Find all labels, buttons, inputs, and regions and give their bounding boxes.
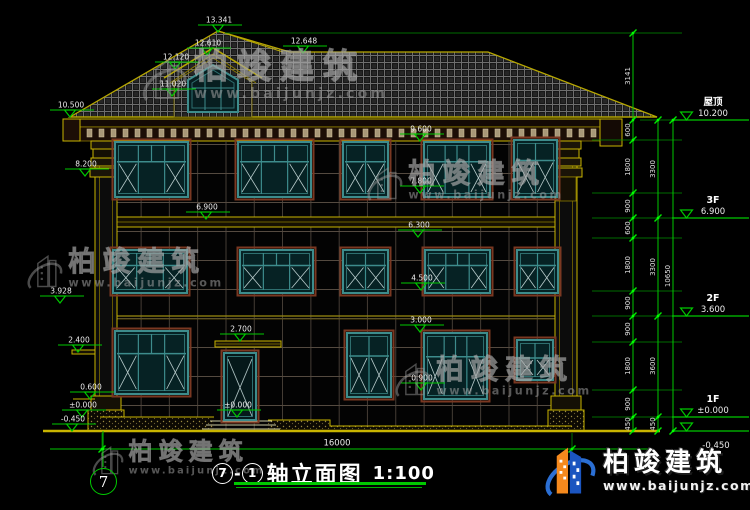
roof [70, 31, 657, 117]
svg-text:900: 900 [624, 322, 632, 335]
title-scale: 1:100 [373, 463, 435, 484]
brand-url: www.baijunjz.com [603, 478, 750, 493]
floor-level-mark: 3F6.900 [672, 195, 749, 218]
svg-text:3141: 3141 [624, 67, 632, 85]
svg-text:450: 450 [649, 417, 657, 430]
svg-text:4.500: 4.500 [411, 274, 433, 283]
svg-text:6.900: 6.900 [196, 203, 218, 212]
window [423, 248, 493, 296]
grid-axis-bubble: 7 [90, 468, 117, 495]
title-underline [234, 482, 426, 485]
side-ledge [72, 350, 95, 354]
svg-text:0.900: 0.900 [411, 374, 433, 383]
svg-text:13.341: 13.341 [206, 16, 232, 25]
svg-text:600: 600 [624, 123, 632, 136]
svg-text:600: 600 [624, 221, 632, 234]
title-underline-thin [236, 487, 422, 488]
svg-text:9.600: 9.600 [410, 125, 432, 134]
cad-drawing-canvas: 13.34112.61012.12011.02012.64810.5009.60… [0, 0, 750, 510]
svg-text:10.200: 10.200 [698, 109, 728, 119]
window [341, 140, 391, 200]
window [422, 140, 493, 200]
svg-text:3300: 3300 [649, 258, 657, 276]
svg-text:3300: 3300 [649, 160, 657, 178]
brand-logo-icon [538, 441, 598, 501]
dim-chain: 10650 [664, 117, 677, 435]
floor-level-mark: 1F±0.000 [672, 394, 749, 417]
window [238, 248, 316, 296]
svg-text:3F: 3F [706, 195, 719, 206]
svg-text:屋顶: 屋顶 [703, 97, 723, 108]
svg-text:-0.450: -0.450 [61, 415, 85, 424]
grid-axis-label: 7 [99, 473, 109, 491]
svg-text:±0.000: ±0.000 [224, 401, 252, 410]
svg-text:3600: 3600 [649, 357, 657, 375]
window [341, 248, 391, 296]
brand-name: 柏竣建筑 [603, 449, 750, 478]
svg-text:2F: 2F [706, 293, 719, 304]
window [113, 140, 191, 200]
level-mark: 3.928 [40, 287, 84, 304]
svg-text:6.900: 6.900 [701, 207, 725, 217]
svg-text:12.648: 12.648 [291, 37, 317, 46]
svg-text:1F: 1F [706, 394, 719, 405]
window [515, 248, 561, 296]
svg-text:3.600: 3.600 [701, 305, 725, 315]
window [512, 138, 560, 200]
svg-text:7.800: 7.800 [410, 177, 432, 186]
svg-text:1800: 1800 [624, 158, 632, 176]
svg-text:±0.000: ±0.000 [69, 401, 97, 410]
entry-door [222, 351, 259, 423]
floor-level-mark: 2F3.600 [672, 293, 749, 316]
svg-text:±0.000: ±0.000 [697, 406, 728, 416]
svg-text:12.120: 12.120 [163, 53, 189, 62]
svg-text:10.500: 10.500 [58, 101, 84, 110]
elevation-drawing: 13.34112.61012.12011.02012.64810.5009.60… [0, 0, 750, 510]
floor-level-mark: 屋顶10.200 [672, 97, 749, 120]
brand-logo: 柏竣建筑 www.baijunjz.com [538, 441, 750, 501]
svg-text:2.700: 2.700 [230, 325, 252, 334]
svg-text:2.400: 2.400 [68, 336, 90, 345]
dim-chain: 3141600180090060018009009001800900450 [624, 30, 637, 435]
axis-dash: - [234, 464, 241, 483]
svg-text:1800: 1800 [624, 256, 632, 274]
svg-text:900: 900 [624, 296, 632, 309]
axis-bubble-start: 7 [212, 463, 233, 484]
window [113, 329, 191, 397]
axis-bubble-end: 1 [242, 463, 263, 484]
svg-text:900: 900 [624, 397, 632, 410]
svg-text:900: 900 [624, 199, 632, 212]
window [345, 331, 394, 400]
svg-text:11.020: 11.020 [160, 80, 186, 89]
svg-text:12.610: 12.610 [195, 39, 221, 48]
svg-text:1800: 1800 [624, 357, 632, 375]
svg-text:3.928: 3.928 [50, 287, 72, 296]
svg-text:10650: 10650 [664, 265, 672, 287]
window [515, 338, 556, 383]
window [422, 331, 490, 402]
svg-text:450: 450 [624, 417, 632, 430]
level-mark: 13.341 [198, 16, 242, 33]
svg-text:8.200: 8.200 [75, 160, 97, 169]
svg-text:3.000: 3.000 [410, 316, 432, 325]
window [236, 140, 314, 200]
dim-chain: 330033003600450 [649, 117, 662, 435]
svg-text:16000: 16000 [323, 439, 350, 449]
svg-text:6.300: 6.300 [408, 221, 430, 230]
level-mark: 12.648 [283, 37, 327, 54]
svg-text:0.600: 0.600 [80, 383, 102, 392]
window [111, 248, 190, 296]
